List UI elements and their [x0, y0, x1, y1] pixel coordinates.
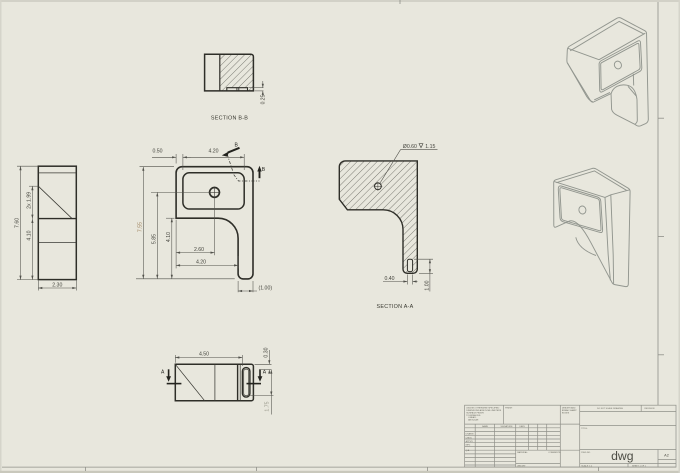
svg-text:TITLE:: TITLE:: [581, 428, 588, 430]
svg-text:REVISION: REVISION: [645, 408, 655, 410]
svg-text:SCALE: 1:2: SCALE: 1:2: [581, 464, 593, 467]
svg-text:DATE: DATE: [520, 425, 526, 428]
svg-text:4.50: 4.50: [199, 351, 209, 357]
svg-text:0.25: 0.25: [261, 94, 267, 104]
svg-text:SHEET 1 OF 1: SHEET 1 OF 1: [632, 465, 647, 467]
svg-text:4.20: 4.20: [196, 260, 206, 266]
svg-text:0.30: 0.30: [264, 347, 270, 357]
svg-text:DWG NO.: DWG NO.: [581, 452, 591, 454]
svg-text:4.10: 4.10: [166, 232, 172, 242]
svg-text:4.10: 4.10: [27, 230, 33, 240]
svg-text:dwg: dwg: [611, 449, 633, 463]
svg-text:0.50: 0.50: [152, 149, 162, 155]
svg-text:FINISH:: FINISH:: [505, 407, 513, 409]
svg-text:DEBURR AND: DEBURR AND: [562, 406, 576, 409]
svg-text:2.60: 2.60: [194, 247, 204, 253]
svg-text:DRAWN: DRAWN: [466, 433, 474, 436]
svg-text:4.20: 4.20: [208, 149, 218, 155]
svg-text:NAME: NAME: [482, 425, 489, 428]
svg-text:1.75: 1.75: [264, 401, 270, 411]
svg-text:ANGULAR:: ANGULAR:: [468, 419, 479, 422]
svg-text:SECTION B-B: SECTION B-B: [211, 116, 248, 122]
svg-text:COMMENTS:: COMMENTS:: [548, 452, 561, 454]
svg-text:1.00: 1.00: [424, 280, 430, 290]
svg-text:MFG: MFG: [466, 445, 471, 447]
svg-text:SECTION A-A: SECTION A-A: [377, 304, 414, 310]
svg-text:DO NOT SCALE DRAWING: DO NOT SCALE DRAWING: [597, 407, 623, 410]
svg-text:Q.A: Q.A: [466, 449, 470, 452]
svg-text:1.15: 1.15: [425, 144, 435, 150]
svg-text:MATERIAL:: MATERIAL:: [517, 451, 528, 454]
svg-text:5.85: 5.85: [152, 234, 158, 244]
svg-text:(1.00): (1.00): [259, 285, 273, 291]
svg-text:CHK'D: CHK'D: [466, 437, 473, 439]
svg-text:7.55: 7.55: [138, 222, 144, 232]
svg-text:2x 1.99: 2x 1.99: [27, 192, 33, 209]
svg-text:Ø0.60: Ø0.60: [403, 144, 417, 150]
svg-text:0.40: 0.40: [384, 276, 394, 282]
svg-text:A2: A2: [664, 454, 669, 458]
svg-text:WEIGHT:: WEIGHT:: [517, 465, 526, 467]
svg-text:7.60: 7.60: [15, 218, 21, 228]
svg-text:SIGNATURE: SIGNATURE: [501, 425, 514, 428]
svg-text:APPV'D: APPV'D: [466, 440, 474, 443]
svg-text:2.30: 2.30: [52, 282, 62, 288]
svg-text:EDGES: EDGES: [562, 412, 570, 414]
